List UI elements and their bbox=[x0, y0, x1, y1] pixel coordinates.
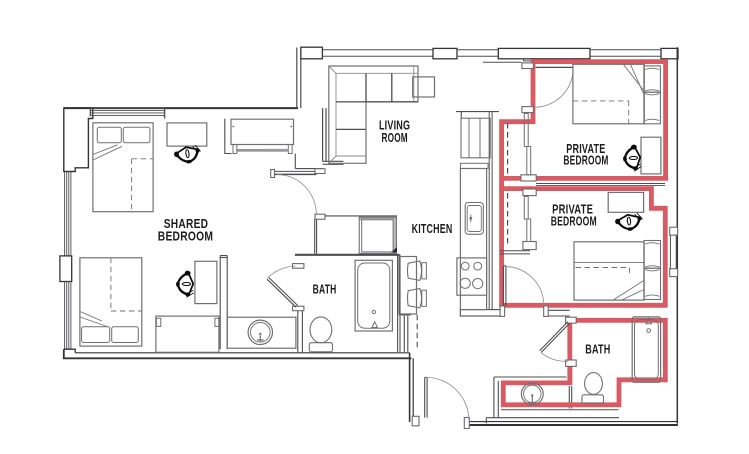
svg-text:BATH: BATH bbox=[585, 343, 610, 357]
svg-text:BEDROOM: BEDROOM bbox=[158, 228, 213, 244]
svg-text:ROOM: ROOM bbox=[381, 131, 407, 145]
svg-text:KITCHEN: KITCHEN bbox=[412, 222, 453, 236]
svg-text:BEDROOM: BEDROOM bbox=[563, 154, 608, 168]
svg-text:BATH: BATH bbox=[313, 283, 337, 297]
svg-text:BEDROOM: BEDROOM bbox=[551, 215, 597, 229]
